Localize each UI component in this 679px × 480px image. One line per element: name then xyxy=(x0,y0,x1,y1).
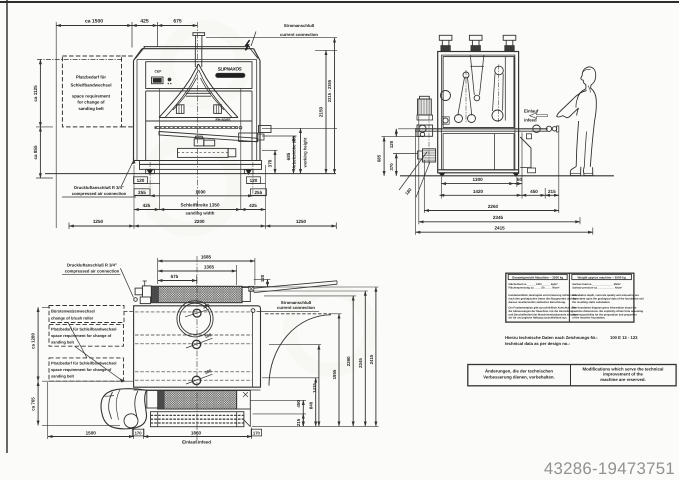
svg-text:2415: 2415 xyxy=(369,354,374,364)
svg-text:ca 1280: ca 1280 xyxy=(31,333,36,349)
svg-text:2260: 2260 xyxy=(488,204,499,209)
svg-text:1250: 1250 xyxy=(93,219,104,224)
svg-text:170: 170 xyxy=(253,431,261,436)
svg-text:2200: 2200 xyxy=(194,219,205,224)
svg-text:1420: 1420 xyxy=(473,189,484,194)
svg-text:Platzbedarf für Schleifbandw: Platzbedarf für Schleifbandwechsel xyxy=(51,326,117,331)
svg-text:120: 120 xyxy=(389,140,394,148)
svg-text:current connection: current connection xyxy=(277,305,315,310)
svg-text:Stromanschluß: Stromanschluß xyxy=(284,23,315,28)
svg-text:space requirement: space requirement xyxy=(72,93,111,98)
svg-text:2150: 2150 xyxy=(319,106,324,117)
svg-text:for change of: for change of xyxy=(77,99,105,104)
svg-text:1500: 1500 xyxy=(86,430,97,435)
svg-text:370: 370 xyxy=(389,163,394,171)
svg-text:425: 425 xyxy=(143,203,151,208)
svg-text:of the machine foundation.: of the machine foundation. xyxy=(572,317,605,320)
svg-text:1415: 1415 xyxy=(312,383,317,393)
svg-text:675: 675 xyxy=(173,19,182,25)
svg-text:CEF: CEF xyxy=(155,70,163,74)
svg-text:255: 255 xyxy=(254,190,262,195)
svg-text:change of brush roller: change of brush roller xyxy=(51,315,94,320)
svg-text:2345: 2345 xyxy=(493,215,504,220)
svg-text:Surface pressure ca__________: Surface pressure ca____________ N/cm² xyxy=(572,287,622,290)
svg-text:Flächenlast ca ______1300____: Flächenlast ca ______1300______ kg/m² xyxy=(509,283,558,286)
svg-text:120: 120 xyxy=(260,274,265,282)
svg-text:215: 215 xyxy=(548,189,556,194)
svg-text:daraus resultierenden statisch: daraus resultierenden statischen Berechn… xyxy=(509,301,567,304)
svg-text:sanding belt: sanding belt xyxy=(51,339,75,344)
svg-text:ca 855: ca 855 xyxy=(33,145,38,159)
svg-text:1250: 1250 xyxy=(296,219,307,224)
svg-text:EH 60/65: EH 60/65 xyxy=(216,118,231,122)
svg-text:Hierzu technische Daten nach Z: Hierzu technische Daten nach Zeichnungs-… xyxy=(505,335,598,340)
svg-text:1690: 1690 xyxy=(195,189,206,194)
svg-text:1300: 1300 xyxy=(472,177,483,182)
svg-text:1685: 1685 xyxy=(201,254,212,259)
svg-text:840: 840 xyxy=(308,401,313,409)
svg-text:1955: 1955 xyxy=(332,369,337,379)
svg-text:SLIPNAXOS: SLIPNAXOS xyxy=(218,67,243,72)
svg-text:improvement of the: improvement of the xyxy=(603,372,643,377)
svg-text:space requirement for change o: space requirement for change of xyxy=(51,367,112,372)
svg-text:the resulting static calculati: the resulting static calculation. xyxy=(572,301,610,304)
svg-text:1365: 1365 xyxy=(204,264,215,269)
svg-text:Platzbedarf für Schleifbandw: Platzbedarf für Schleifbandwechsel xyxy=(51,360,117,365)
svg-text:425: 425 xyxy=(140,19,149,25)
svg-text:2215 - 2365: 2215 - 2365 xyxy=(327,79,332,102)
svg-text:sanding width: sanding width xyxy=(186,211,215,216)
svg-text:Verbesserung dienen, vorbehalt: Verbesserung dienen, vorbehalten. xyxy=(483,375,554,380)
svg-text:450: 450 xyxy=(296,400,301,408)
svg-text:compressed air connection: compressed air connection xyxy=(72,191,127,196)
svg-text:compressed air connection: compressed air connection xyxy=(65,269,120,274)
svg-text:120: 120 xyxy=(137,178,145,183)
svg-text:685: 685 xyxy=(286,152,291,160)
svg-text:170: 170 xyxy=(135,431,143,436)
svg-text:Arbeitshöhe 880: Arbeitshöhe 880 xyxy=(292,136,297,169)
svg-text:2415: 2415 xyxy=(494,225,505,230)
svg-text:space requirement for change o: space requirement for change of xyxy=(51,333,112,338)
svg-text:ca 765: ca 765 xyxy=(31,397,36,411)
svg-text:43286-19473751: 43286-19473751 xyxy=(544,459,675,478)
svg-text:current connection: current connection xyxy=(280,32,318,37)
svg-text:60: 60 xyxy=(517,177,523,182)
svg-text:Druckluftanschluß R 3/4”: Druckluftanschluß R 3/4” xyxy=(67,263,117,268)
svg-text:Flächenpressung ca _____50___: Flächenpressung ca _____50_____ N/cm² xyxy=(509,287,560,290)
svg-text:sanding belt: sanding belt xyxy=(78,106,104,111)
svg-text:wir für uns jegliche Haftung a: wir für uns jegliche Haftung ausschließe… xyxy=(509,317,568,320)
svg-text:Schleifbandwechsel: Schleifbandwechsel xyxy=(70,83,111,88)
svg-text:working height: working height xyxy=(302,137,307,168)
svg-text:2260: 2260 xyxy=(346,356,351,366)
svg-text:technical data as per design n: technical data as per design no.: xyxy=(505,341,570,346)
svg-text:675: 675 xyxy=(171,274,179,279)
svg-text:255: 255 xyxy=(138,190,146,195)
svg-text:Platzbedarf für: Platzbedarf für xyxy=(76,74,106,79)
svg-text:infeed: infeed xyxy=(524,118,537,123)
svg-text:ca 1125: ca 1125 xyxy=(33,85,38,102)
svg-text:425: 425 xyxy=(249,203,257,208)
svg-text:Einlauf infeed: Einlauf infeed xyxy=(182,439,211,444)
svg-text:Schleifbreite 1350: Schleifbreite 1350 xyxy=(180,203,220,208)
svg-text:Modifications which serve the: Modifications which serve the technical xyxy=(583,366,664,371)
svg-text:Druckluftanschluß R 3/4”: Druckluftanschluß R 3/4” xyxy=(74,185,124,190)
svg-text:machine are reserved.: machine are reserved. xyxy=(600,377,645,382)
svg-text:Surface load ca______________: Surface load ca_______________ kN/m² xyxy=(572,283,621,286)
svg-text:1860: 1860 xyxy=(191,430,202,435)
svg-text:370: 370 xyxy=(268,159,273,167)
svg-text:2345: 2345 xyxy=(358,358,363,368)
svg-text:100 E 13 - 123: 100 E 13 - 123 xyxy=(610,335,638,340)
svg-text:sanding belt: sanding belt xyxy=(51,373,75,378)
svg-text:Gesamtgewicht Maschine ~ 3500: Gesamtgewicht Maschine ~ 3500 kg xyxy=(512,276,563,280)
svg-text:450: 450 xyxy=(530,189,538,194)
svg-text:120: 120 xyxy=(250,178,258,183)
svg-text:Änderungen, die der technische: Änderungen, die der technischen xyxy=(485,368,553,373)
svg-text:ca 1500: ca 1500 xyxy=(85,19,103,25)
svg-text:685: 685 xyxy=(377,154,382,162)
svg-text:215: 215 xyxy=(296,418,301,426)
svg-text:Bürstenwalzenwechsel: Bürstenwalzenwechsel xyxy=(51,308,95,313)
svg-text:Weight approx machine ~ 3500 k: Weight approx machine ~ 3500 kg xyxy=(577,276,625,280)
